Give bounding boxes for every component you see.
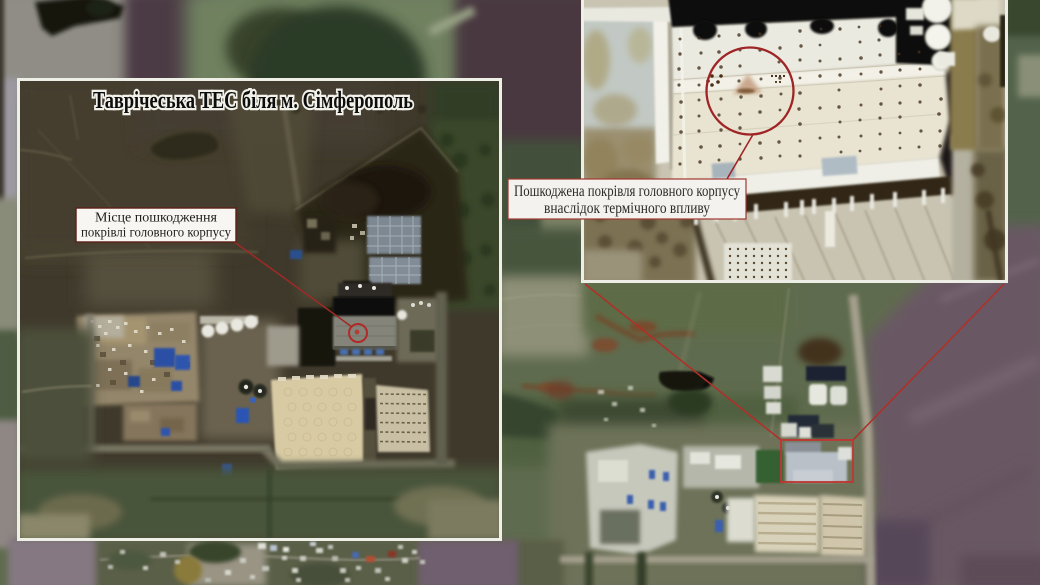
svg-text:внаслідок термічного впливу: внаслідок термічного впливу	[544, 200, 710, 217]
svg-text:Місце пошкодження: Місце пошкодження	[95, 210, 217, 225]
svg-text:покрівлі головного корпусу: покрівлі головного корпусу	[81, 225, 231, 240]
svg-text:Пошкоджена покрівля головного: Пошкоджена покрівля головного корпусу	[514, 183, 740, 200]
svg-text:Таврічеська ТЕС біля м. Сімфер: Таврічеська ТЕС біля м. Сімферополь	[93, 88, 413, 114]
